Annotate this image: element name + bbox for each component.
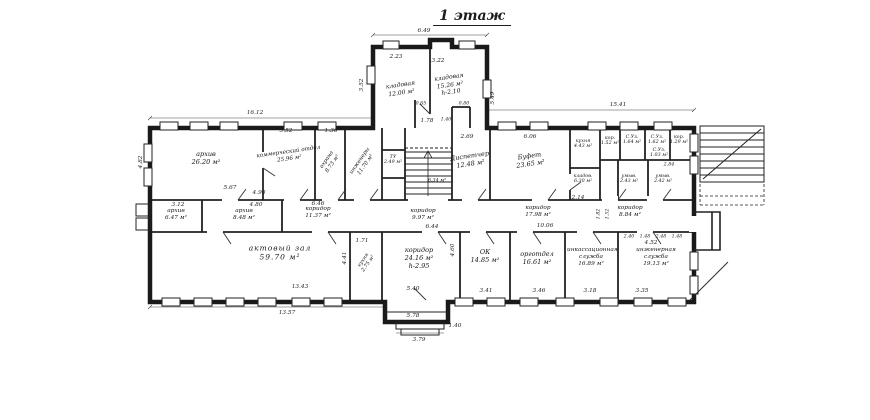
dimension-label: 15.41 (610, 102, 627, 108)
dimension-label: 4.52 (645, 240, 658, 246)
dimension-label: 1.36 (325, 128, 338, 134)
room-area: 4.43 м² (574, 144, 592, 149)
dimension-label: 1.52 (606, 209, 611, 220)
dimension-label: 2.69 (461, 134, 474, 140)
room-label-umyv-1: умыв. 2.43 м² (620, 174, 638, 184)
room-area: 1.62 м² (648, 140, 666, 145)
room-label-kladov: кладов. 6.30 м² (573, 174, 592, 184)
room-area: 24.16 м² (405, 254, 434, 262)
dimension-label: 3.35 (636, 288, 649, 294)
room-area: 6.47 м² (165, 215, 187, 222)
dimension-label: 5.49 (490, 92, 496, 105)
room-label-kukhnya: кухня 4.43 м² (574, 139, 592, 149)
dimension-label: 6.44 (426, 224, 439, 230)
room-label-arkhiv-1: архив 26.20 м² (192, 150, 221, 166)
room-label-koridor-3: коридор 17.98 м² (525, 205, 551, 219)
dimension-label: 6.06 (524, 134, 537, 140)
room-name: инженерная служба (632, 247, 680, 261)
room-area: 8.48 м² (233, 215, 255, 222)
room-label-koridor-2: коридор 9.97 м² (410, 208, 435, 222)
room-label-stair-area: 6.34 м² (428, 178, 446, 183)
room-label-arkhiv-2: архив 6.47 м² (165, 208, 187, 222)
dimension-label: 4.60 (450, 244, 456, 257)
dimension-label: 3.79 (413, 337, 426, 343)
room-area: 1.29 м² (670, 140, 688, 145)
dimension-label: 4.90 (253, 190, 266, 196)
room-area: 16.61 м² (520, 258, 554, 266)
dimension-label: 0.80 (459, 102, 470, 107)
dimension-label: 2.48 (656, 235, 667, 240)
room-label-kor-3: 2.84 (664, 162, 675, 167)
room-area: 6.30 м² (573, 179, 592, 184)
room-area: 17.98 м² (525, 212, 551, 219)
dimension-label: 1.48 (640, 235, 651, 240)
room-name: ОК (471, 248, 500, 256)
room-label-kladovaya-2: кладовая 15.26 м² h-2.10 (434, 72, 466, 98)
room-label-kor-1: кор. 1.52 м² (601, 136, 619, 146)
dimension-label: 3.46 (533, 288, 546, 294)
room-area: 16.89 м² (567, 262, 615, 269)
room-label-orgotdel: орготдел 16.61 м² (520, 250, 554, 266)
room-name: актовый зал (249, 244, 312, 253)
room-area: 2.49 м² (384, 160, 402, 165)
dimension-label: 3.41 (480, 288, 493, 294)
dimension-label: 5.67 (224, 185, 237, 191)
dimension-lines (148, 33, 696, 333)
room-name: орготдел (520, 250, 554, 258)
room-height: h-2.95 (405, 262, 434, 270)
room-area: 8.84 м² (617, 212, 642, 219)
room-area: 26.20 м² (192, 158, 221, 166)
dimension-label: 3.52 (359, 79, 365, 92)
dimension-label: 3.18 (584, 288, 597, 294)
dimension-label: 5.52 (280, 128, 293, 134)
room-area: 1.64 м² (623, 140, 641, 145)
dimension-label: 2.14 (572, 195, 585, 201)
dimension-label: 1.40 (441, 118, 452, 123)
dimension-label: 6.46 (312, 201, 325, 207)
room-label-koridor-4: коридор 8.84 м² (617, 205, 642, 219)
room-label-inzhenernaya-sluzhba: инженерная служба 19.13 м² (632, 247, 680, 269)
room-name: архив (192, 150, 221, 158)
room-label-koridor-5: коридор 24.16 м² h-2.95 (405, 246, 434, 270)
central-stairs (405, 148, 452, 196)
dimension-label: 0.65 (416, 102, 427, 107)
outer-walls (150, 40, 694, 322)
room-name: инкассационная служба (567, 247, 615, 261)
dimension-label: 6.49 (418, 28, 431, 34)
dimension-label: 1.82 (597, 209, 602, 220)
dimension-label: 13.43 (292, 284, 309, 290)
dimension-label: 13.57 (279, 310, 296, 316)
room-label-umyv-2: умыв. 2.42 м² (654, 174, 672, 184)
dimension-label: 4.82 (138, 156, 144, 169)
room-area: 2.84 (664, 162, 675, 167)
room-label-suz-2: С.Уз. 1.62 м² (648, 135, 666, 145)
dimension-label: 10.06 (537, 223, 554, 229)
room-area: 6.34 м² (428, 178, 446, 183)
room-label-suz-1: С.Уз. 1.64 м² (623, 135, 641, 145)
room-area: 19.13 м² (632, 262, 680, 269)
room-label-tu: ТУ 2.49 м² (384, 155, 402, 165)
dimension-label: 1.78 (421, 118, 434, 124)
dimension-label: 16.12 (247, 110, 264, 116)
room-area: 1.03 м² (650, 153, 668, 158)
room-area: 1.52 м² (601, 141, 619, 146)
room-area: 59.70 м² (249, 253, 312, 262)
room-area: 14.85 м² (471, 256, 500, 264)
room-area: 2.43 м² (620, 179, 638, 184)
room-label-kor-2: кор. 1.29 м² (670, 135, 688, 145)
room-label-suz-3: С.Уз. 1.03 м² (650, 148, 668, 158)
dimension-label: 3.12 (172, 202, 185, 208)
dimension-label: 1.40 (449, 323, 462, 329)
dimension-label: 2.40 (624, 235, 635, 240)
room-label-aktovyy-zal: актовый зал 59.70 м² (249, 244, 312, 263)
right-exterior-stairs (700, 126, 764, 205)
dimension-label: 5.78 (407, 313, 420, 319)
room-label-inkassatsionnaya-sluzhba: инкассационная служба 16.89 м² (567, 247, 615, 269)
room-area: 9.97 м² (410, 215, 435, 222)
dimension-label: 5.40 (407, 286, 420, 292)
room-area: 2.42 м² (654, 179, 672, 184)
room-area: 11.37 м² (305, 213, 331, 220)
room-label-arkhiv-3: архив 8.48 м² (233, 208, 255, 222)
room-label-ok: ОК 14.85 м² (471, 248, 500, 264)
dimension-label: 4.80 (250, 202, 263, 208)
room-label-koridor-1: коридор 11.37 м² (305, 206, 331, 220)
dimension-label: 4.41 (342, 252, 348, 265)
dimension-label: 1.71 (356, 238, 369, 244)
room-name: коридор (405, 246, 434, 254)
floor-plan-page: 1 этаж (0, 0, 870, 420)
dimension-label: 3.22 (432, 58, 445, 64)
dimension-label: 2.23 (390, 54, 403, 60)
dimension-label: 1.48 (672, 235, 683, 240)
